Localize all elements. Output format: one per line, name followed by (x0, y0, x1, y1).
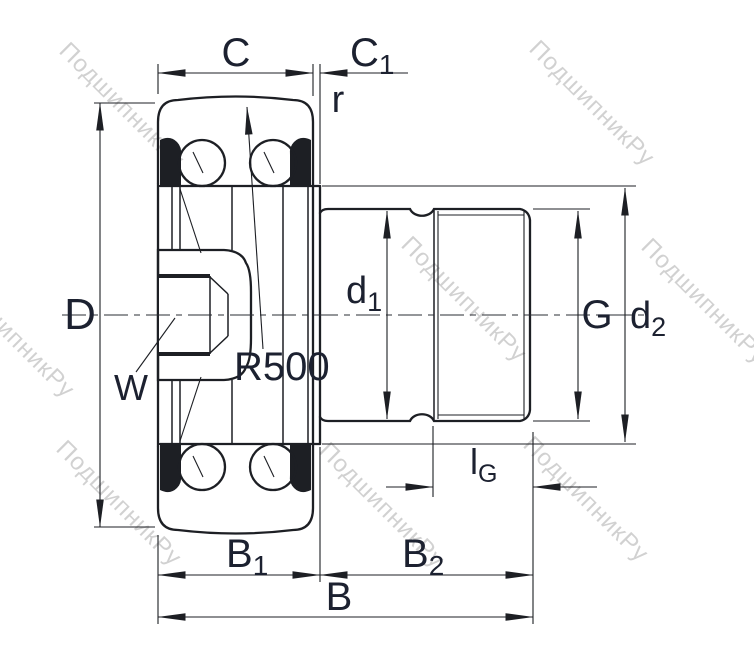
label-D: D (64, 290, 96, 339)
ball (179, 444, 225, 490)
label-B2-main: B (402, 532, 429, 576)
label-r: r (332, 79, 345, 121)
drawing-canvas: ПодшипникРу ПодшипникРу ПодшипникРу Подш… (0, 0, 754, 652)
label-lG: lG (470, 441, 497, 488)
label-B: B (326, 575, 353, 619)
bearing-technical-drawing: ПодшипникРу ПодшипникРу ПодшипникРу Подш… (0, 0, 754, 652)
label-d1: d1 (346, 270, 382, 317)
seal (290, 138, 311, 186)
label-B2: B2 (402, 532, 444, 581)
label-C1-main: C (350, 31, 379, 75)
ball-mark (193, 152, 203, 173)
label-G: G (581, 293, 612, 337)
ball-mark (264, 152, 274, 173)
watermark: ПодшипникРу (524, 35, 660, 171)
label-C1-sub: 1 (379, 49, 395, 80)
ball (250, 444, 296, 490)
watermark: ПодшипникРу (518, 431, 654, 567)
label-d2: d2 (630, 295, 666, 342)
seal (290, 444, 311, 492)
label-d1-main: d (346, 270, 367, 312)
label-B1: B1 (226, 532, 268, 581)
label-lG-sub: G (478, 460, 497, 488)
label-C1: C1 (350, 31, 394, 80)
label-B1-main: B (226, 532, 253, 576)
label-R500: R500 (234, 345, 330, 389)
watermark: ПодшипникРу (636, 233, 754, 369)
watermark: ПодшипникРу (396, 231, 532, 367)
ball (179, 140, 225, 186)
label-d2-sub: 2 (651, 312, 666, 342)
ball (250, 140, 296, 186)
label-C: C (222, 31, 251, 75)
ball-mark (193, 456, 203, 477)
ball-mark (264, 456, 274, 477)
label-d2-main: d (630, 295, 651, 337)
label-lG-main: l (470, 441, 478, 482)
label-W: W (114, 367, 148, 408)
label-d1-sub: 1 (367, 287, 382, 317)
label-B2-sub: 2 (429, 550, 445, 581)
label-B1-sub: 1 (253, 550, 269, 581)
